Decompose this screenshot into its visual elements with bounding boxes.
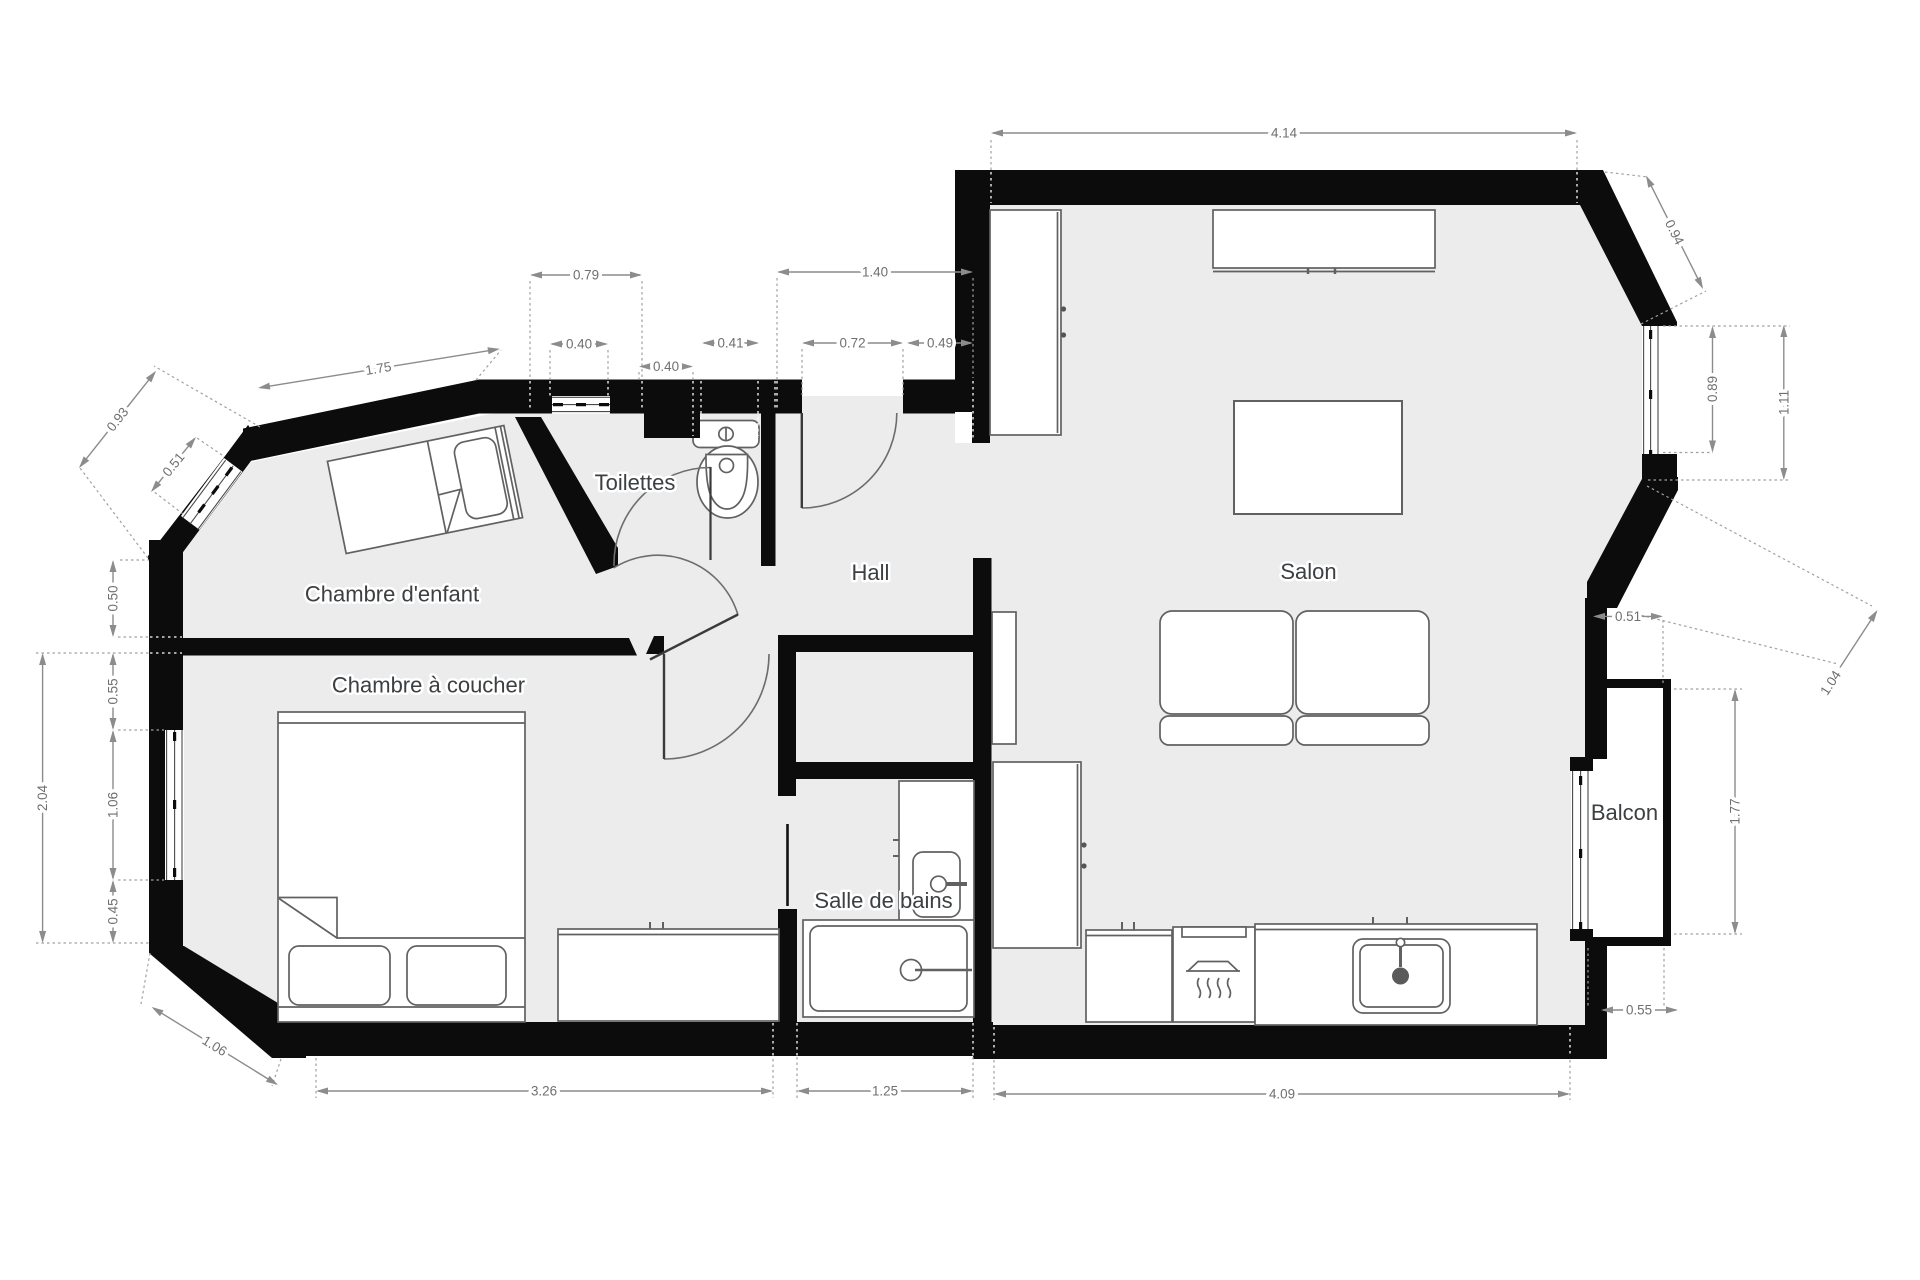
svg-text:0.41: 0.41	[717, 336, 743, 351]
svg-text:Chambre à coucher: Chambre à coucher	[332, 673, 525, 698]
svg-text:0.72: 0.72	[839, 336, 865, 351]
svg-text:0.55: 0.55	[106, 678, 121, 704]
svg-text:0.89: 0.89	[1705, 376, 1720, 402]
svg-text:0.40: 0.40	[653, 359, 679, 374]
svg-text:1.77: 1.77	[1728, 798, 1743, 824]
svg-text:0.40: 0.40	[566, 337, 592, 352]
svg-text:Hall: Hall	[852, 560, 890, 585]
svg-text:Toilettes: Toilettes	[595, 470, 676, 495]
svg-text:0.51: 0.51	[1615, 609, 1641, 624]
svg-text:Chambre d'enfant: Chambre d'enfant	[305, 582, 479, 607]
svg-text:Salon: Salon	[1280, 559, 1336, 584]
svg-text:1.11: 1.11	[1776, 390, 1791, 415]
svg-text:0.50: 0.50	[106, 585, 121, 611]
svg-text:Balcon: Balcon	[1591, 800, 1658, 825]
svg-text:Salle de bains: Salle de bains	[814, 888, 952, 913]
svg-text:4.09: 4.09	[1269, 1087, 1295, 1102]
svg-text:0.55: 0.55	[1626, 1003, 1652, 1018]
svg-text:1.25: 1.25	[872, 1084, 898, 1099]
svg-text:3.26: 3.26	[531, 1084, 557, 1099]
svg-text:0.79: 0.79	[573, 268, 599, 283]
svg-text:1.40: 1.40	[862, 265, 888, 280]
svg-text:2.04: 2.04	[35, 784, 50, 811]
svg-text:0.49: 0.49	[927, 336, 953, 351]
svg-text:0.45: 0.45	[106, 898, 121, 924]
svg-text:4.14: 4.14	[1271, 126, 1298, 141]
svg-text:1.06: 1.06	[106, 792, 121, 818]
